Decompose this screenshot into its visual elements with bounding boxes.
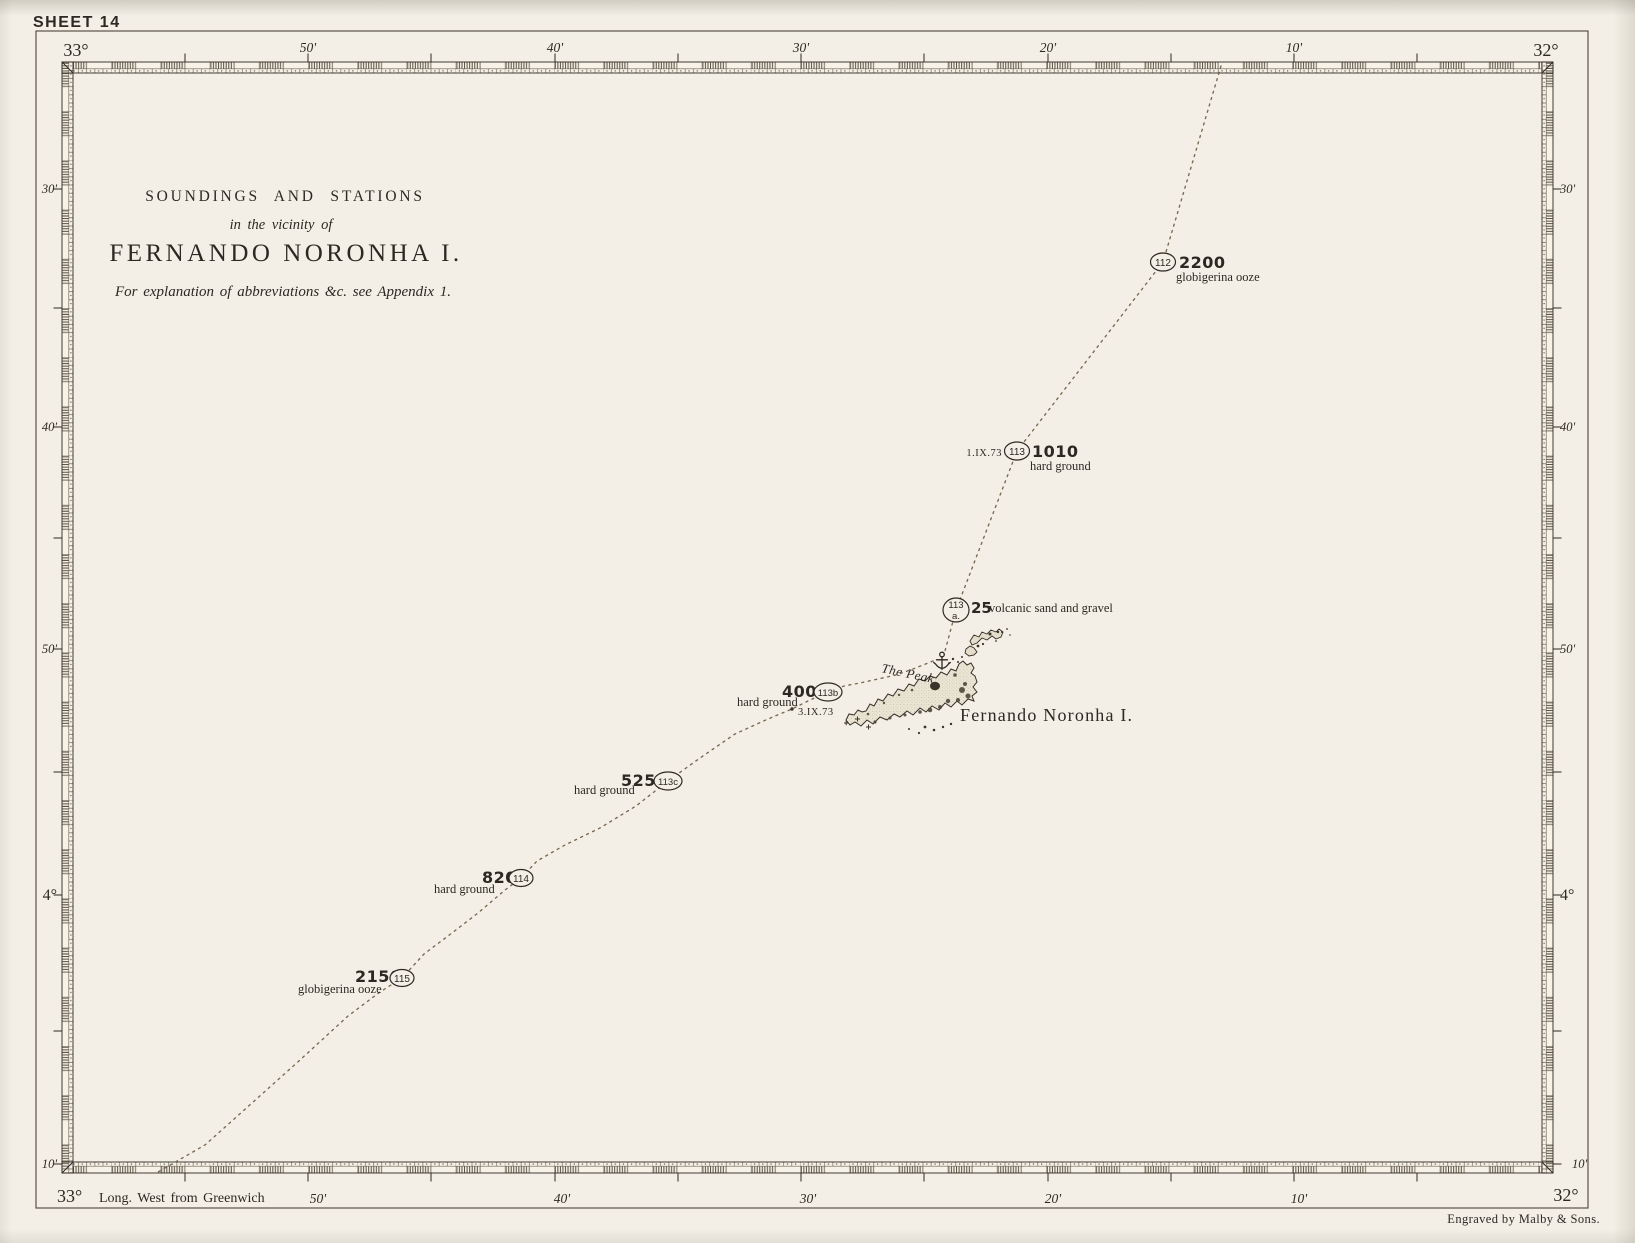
top-scale-label-50min: 50' — [300, 40, 318, 55]
bottom-scale-label-50min: 50' — [310, 1191, 328, 1206]
station-id: 115 — [394, 974, 410, 985]
station-id-suffix: a. — [952, 611, 960, 622]
title-line-3: FERNANDO NORONHA I. — [109, 240, 462, 267]
top-scale-label-20min: 20' — [1040, 40, 1058, 55]
left-scale-label-40min: 40' — [42, 420, 58, 434]
station-115: 2150 115 globigerina ooze — [298, 967, 414, 996]
station-date-label: 1.IX.73 — [966, 448, 1002, 459]
bottom-scale-label-20min: 20' — [1045, 1191, 1063, 1206]
island-fernando-noronha: The Peak Fernando Noronha I. — [844, 628, 1133, 734]
station-seabed-label: globigerina ooze — [298, 982, 382, 996]
top-scale-label-33deg: 33° — [63, 40, 88, 60]
station-114: 820 114 hard ground — [434, 868, 533, 896]
right-scale-label-50min: 50' — [1560, 642, 1576, 656]
outer-frame — [36, 31, 1588, 1208]
station-113b: 400 113b hard ground 3.IX.73 — [737, 682, 842, 718]
station-113: 1.IX.73 113 1010 hard ground — [966, 442, 1091, 473]
longitude-scale-bottom: 33° Long. West from Greenwich 50' 40' 30… — [57, 1185, 1579, 1206]
station-seabed-label: hard ground — [434, 882, 495, 896]
title-block: SOUNDINGS AND STATIONS in the vicinity o… — [109, 188, 462, 300]
top-scale-label-30min: 30' — [792, 40, 811, 55]
top-scale-label-10min: 10' — [1286, 40, 1304, 55]
station-date-label: 3.IX.73 — [798, 707, 834, 718]
station-id: 113c — [658, 777, 678, 788]
anchorage-icon — [934, 652, 951, 669]
latitude-scale-right: 30' 40' 50' 4° 10' — [1559, 182, 1588, 1171]
top-scale-label-32deg: 32° — [1533, 40, 1558, 60]
top-scale-label-40min: 40' — [547, 40, 565, 55]
chart-canvas: SHEET 14 33° 50' 40' 30' 20' 10' 32° 33°… — [0, 0, 1635, 1243]
bottom-scale-label-33deg: 33° — [57, 1186, 82, 1206]
right-scale-label-10min: 10' — [1572, 1157, 1588, 1171]
station-seabed-label: globigerina ooze — [1176, 270, 1260, 284]
latitude-scale-left: 30' 40' 50' 4° 10' — [41, 182, 58, 1171]
chart-sheet: SHEET 14 33° 50' 40' 30' 20' 10' 32° 33°… — [0, 0, 1635, 1243]
longitude-scale-top: 33° 50' 40' 30' 20' 10' 32° — [63, 40, 1558, 60]
station-seabed-label: volcanic sand and gravel — [989, 601, 1113, 615]
greenwich-note: Long. West from Greenwich — [99, 1191, 265, 1206]
station-112: 112 2200 globigerina ooze — [1151, 253, 1261, 284]
track-north-leg — [945, 66, 1221, 651]
bottom-scale-label-10min: 10' — [1291, 1191, 1309, 1206]
station-id: 113 — [1009, 447, 1025, 458]
bottom-scale-label-40min: 40' — [554, 1191, 572, 1206]
right-scale-label-4deg: 4° — [1560, 887, 1574, 904]
right-scale-label-30min: 30' — [1559, 182, 1576, 196]
left-scale-label-30min: 30' — [41, 182, 58, 196]
offshore-islets — [965, 629, 1003, 656]
left-scale-label-4deg: 4° — [43, 887, 57, 904]
station-seabed-label: hard ground — [1030, 459, 1091, 473]
bottom-scale-label-30min: 30' — [799, 1191, 818, 1206]
station-id: 112 — [1155, 258, 1171, 269]
left-scale-label-50min: 50' — [42, 642, 58, 656]
right-scale-label-40min: 40' — [1560, 420, 1576, 434]
engraver-credit: Engraved by Malby & Sons. — [1447, 1212, 1600, 1226]
title-line-1: SOUNDINGS AND STATIONS — [145, 188, 425, 205]
island-name-label: Fernando Noronha I. — [960, 705, 1133, 725]
station-id: 114 — [513, 874, 529, 885]
bottom-scale-label-32deg: 32° — [1553, 1185, 1578, 1205]
title-line-2: in the vicinity of — [230, 217, 335, 233]
station-seabed-label: hard ground — [574, 783, 635, 797]
title-line-4: For explanation of abbreviations &c. see… — [114, 284, 451, 300]
station-id: 113 — [948, 600, 963, 611]
track-west-leg — [158, 661, 933, 1172]
sheet-number-label: SHEET 14 — [33, 14, 121, 31]
station-113c: 525 113c hard ground — [574, 771, 682, 797]
peak-label: The Peak — [880, 660, 935, 686]
left-scale-label-10min: 10' — [42, 1157, 58, 1171]
station-id: 113b — [818, 688, 838, 699]
station-seabed-label: hard ground — [737, 695, 798, 709]
station-113a: 113 a. 25 volcanic sand and gravel — [943, 598, 1113, 622]
